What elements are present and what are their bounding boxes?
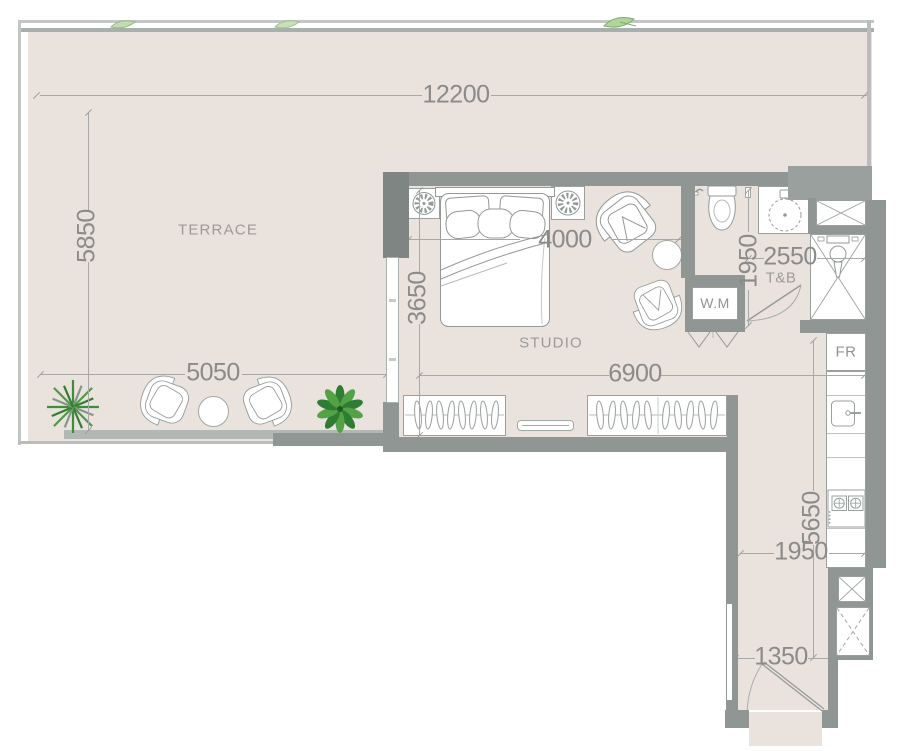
counter-divider [827, 433, 865, 434]
entry-threshold [749, 712, 822, 746]
x-pattern-icon [837, 608, 869, 655]
dim-label-5850: 5850 [75, 209, 100, 263]
wall-topright-block [788, 166, 872, 200]
dim-line-5050 [40, 374, 185, 375]
dim-line-1950-bath [748, 290, 749, 326]
shower-icon [811, 235, 865, 319]
dim-line-12200 [491, 95, 867, 96]
dim-line-4000 [408, 239, 520, 240]
stove-icon [827, 489, 866, 529]
room-label-fridge: FR [836, 345, 857, 360]
duct-shaft [838, 576, 866, 602]
wall-band-tb [800, 320, 866, 333]
greenery-sprig-icon [108, 16, 138, 32]
tv-screen-line [522, 425, 569, 426]
dim-label-3650: 3650 [406, 271, 431, 325]
duct-shaft [836, 607, 870, 656]
parapet-right [867, 20, 871, 172]
shower-stall [810, 234, 866, 320]
wall-bottom-right [822, 710, 838, 728]
dim-line-5650 [813, 340, 814, 491]
dim-label-12200: 12200 [422, 83, 489, 108]
parapet-top-outer [18, 20, 874, 23]
dim-label-5050: 5050 [186, 361, 240, 386]
room-label-terrace: TERRACE [178, 223, 258, 238]
dim-label-1950-kitchen: 1950 [774, 540, 828, 565]
dim-label-4000: 4000 [538, 228, 592, 253]
dim-line-6900 [419, 375, 609, 376]
greenery-sprig-icon [272, 16, 302, 32]
dim-line-1950-bath [748, 190, 749, 232]
counter-divider [827, 395, 865, 396]
dim-line-1950-kitchen [740, 553, 774, 554]
kitchen-sink-icon [829, 398, 863, 429]
x-pattern-icon [817, 201, 865, 225]
wall-wm-top [692, 275, 738, 287]
bifold-door-icon [686, 330, 740, 350]
wall-shower-band [808, 226, 866, 234]
dim-line-3650 [419, 190, 420, 272]
wall-wm-bottom [692, 320, 738, 332]
wall-studio-bottom [383, 437, 738, 452]
toilet-icon [702, 184, 744, 236]
wardrobe-end-cap [727, 395, 738, 437]
wall-wm-left [685, 275, 692, 332]
dim-label-1350: 1350 [754, 645, 808, 670]
room-label-studio: STUDIO [519, 336, 583, 351]
parapet-top-inner [18, 28, 874, 32]
wall-right [866, 200, 886, 568]
dim-label-6900: 6900 [608, 362, 662, 387]
dim-label-2550: 2550 [763, 245, 817, 270]
wall-shower-left [808, 198, 816, 228]
hangers-icon [588, 396, 726, 435]
greenery-sprig-icon [600, 12, 640, 32]
wall-inset-panel [727, 604, 732, 700]
counter-divider [827, 457, 865, 458]
dim-line-5850 [88, 112, 89, 210]
dim-line-1950-kitchen [829, 553, 867, 554]
floor-plan: TERRACE STUDIO T&B W.M FR 12200 5850 505… [0, 0, 900, 751]
bush-plant-icon [315, 383, 365, 435]
dim-line-4000 [611, 239, 681, 240]
parapet-left [18, 20, 21, 445]
sliding-door-tick [389, 299, 396, 302]
dim-line-6900 [661, 375, 867, 376]
dim-line-1350 [735, 658, 755, 659]
sliding-door [386, 257, 399, 403]
shower-tray [816, 200, 866, 226]
lounge-chair-icon [234, 373, 296, 433]
wardrobe-right [587, 395, 727, 436]
room-label-bath: T&B [766, 271, 797, 286]
wall-studio-top [383, 172, 788, 186]
dim-line-5850 [88, 262, 89, 430]
sliding-door-tick [389, 358, 396, 361]
bed-icon [433, 184, 557, 330]
palm-plant-icon [40, 375, 106, 439]
terrace-round-table [198, 396, 229, 427]
wall-pillar-left [383, 172, 409, 258]
dim-line-5050 [242, 374, 389, 375]
wall-bottom-left [725, 710, 749, 728]
dim-line-3650 [419, 324, 420, 436]
room-label-washer: W.M [700, 296, 730, 310]
studio-side-table [652, 240, 682, 270]
wall-tb-west [681, 178, 695, 278]
armchair-icon [624, 270, 688, 336]
dim-line-12200 [40, 95, 422, 96]
dim-line-2550 [817, 258, 867, 259]
tv-console [517, 420, 574, 431]
dim-label-1950-bath: 1950 [737, 234, 762, 288]
x-pattern-icon [839, 577, 865, 601]
